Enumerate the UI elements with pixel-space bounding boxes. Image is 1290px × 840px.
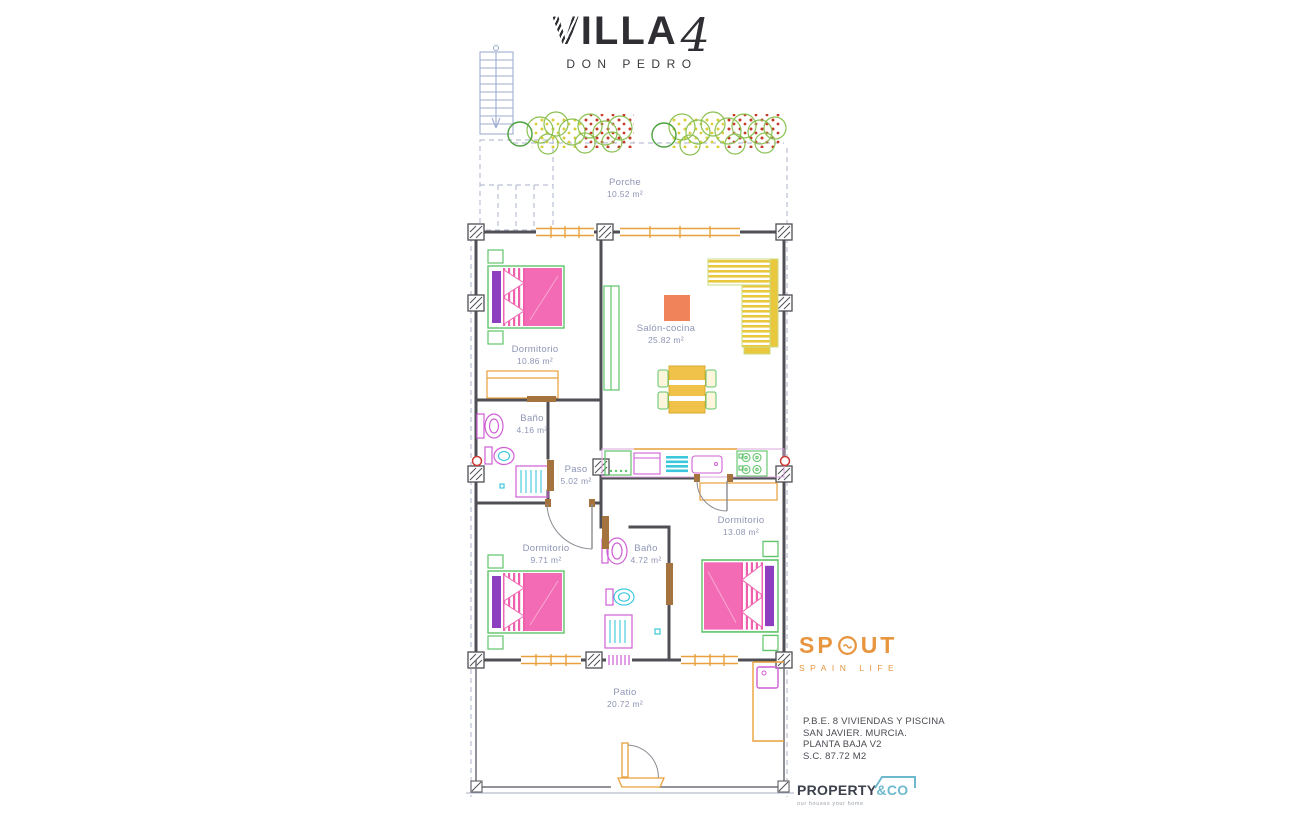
bed-icon — [488, 250, 778, 650]
villa-title: VILLA4 — [552, 10, 712, 56]
garden-trees-icon — [508, 112, 786, 155]
spout-text-end: UT — [861, 632, 898, 659]
project-info: P.B.E. 8 VIVIENDAS Y PISCINA SAN JAVIER.… — [803, 716, 945, 762]
spout-text-start: SP — [799, 632, 836, 659]
patio-outline — [471, 660, 789, 792]
property-text: PROPERTY — [797, 782, 876, 798]
floor-plan-svg — [0, 0, 1290, 840]
room-label-salon-cocina: Salón-cocina25.82 m² — [637, 324, 696, 345]
room-label-dormitorio-3: Dormitorio9.71 m² — [523, 544, 570, 565]
staircase-icon — [480, 46, 513, 135]
project-info-line: SAN JAVIER. MURCIA. — [803, 728, 945, 740]
villa-v-letter: V — [552, 9, 581, 53]
project-info-line: S.C. 87.72 M2 — [803, 751, 945, 763]
kitchen-counter-icon — [602, 449, 784, 477]
room-label-dormitorio-2: Dormitorio13.08 m² — [718, 516, 765, 537]
property-co-logo: PROPERTY&CO our houses your home — [797, 782, 908, 807]
spout-tagline: SPAIN LIFE — [799, 663, 899, 673]
dining-table-icon — [658, 366, 716, 413]
room-label-patio: Patio20.72 m² — [607, 688, 643, 709]
property-co-wordmark: PROPERTY&CO — [797, 782, 908, 798]
spout-o-icon — [837, 635, 858, 656]
side-table-icon — [664, 295, 690, 321]
villa-number: 4 — [681, 8, 712, 62]
shelf-icon — [604, 286, 619, 390]
spout-wordmark: SP UT — [799, 632, 899, 659]
room-label-porche: Porche10.52 m² — [607, 178, 643, 199]
floor-plan-page: VILLA4 DON PEDRO Porche10.52 m² Dormitor… — [0, 0, 1290, 840]
sofa-icon — [708, 259, 778, 354]
room-label-dormitorio-1: Dormitorio10.86 m² — [512, 345, 559, 366]
property-tagline: our houses your home — [797, 801, 908, 807]
villa-subtitle: DON PEDRO — [552, 57, 712, 71]
plan-title: VILLA4 DON PEDRO — [552, 10, 712, 71]
room-label-paso: Paso5.02 m² — [561, 465, 592, 486]
room-label-bano-1: Baño4.16 m² — [517, 414, 548, 435]
project-info-line: PLANTA BAJA V2 — [803, 739, 945, 751]
spout-logo: SP UT SPAIN LIFE — [799, 632, 899, 673]
room-label-bano-2: Baño4.72 m² — [631, 544, 662, 565]
project-info-line: P.B.E. 8 VIVIENDAS Y PISCINA — [803, 716, 945, 728]
property-roof-icon — [873, 775, 921, 789]
villa-word: ILLA — [581, 9, 678, 53]
